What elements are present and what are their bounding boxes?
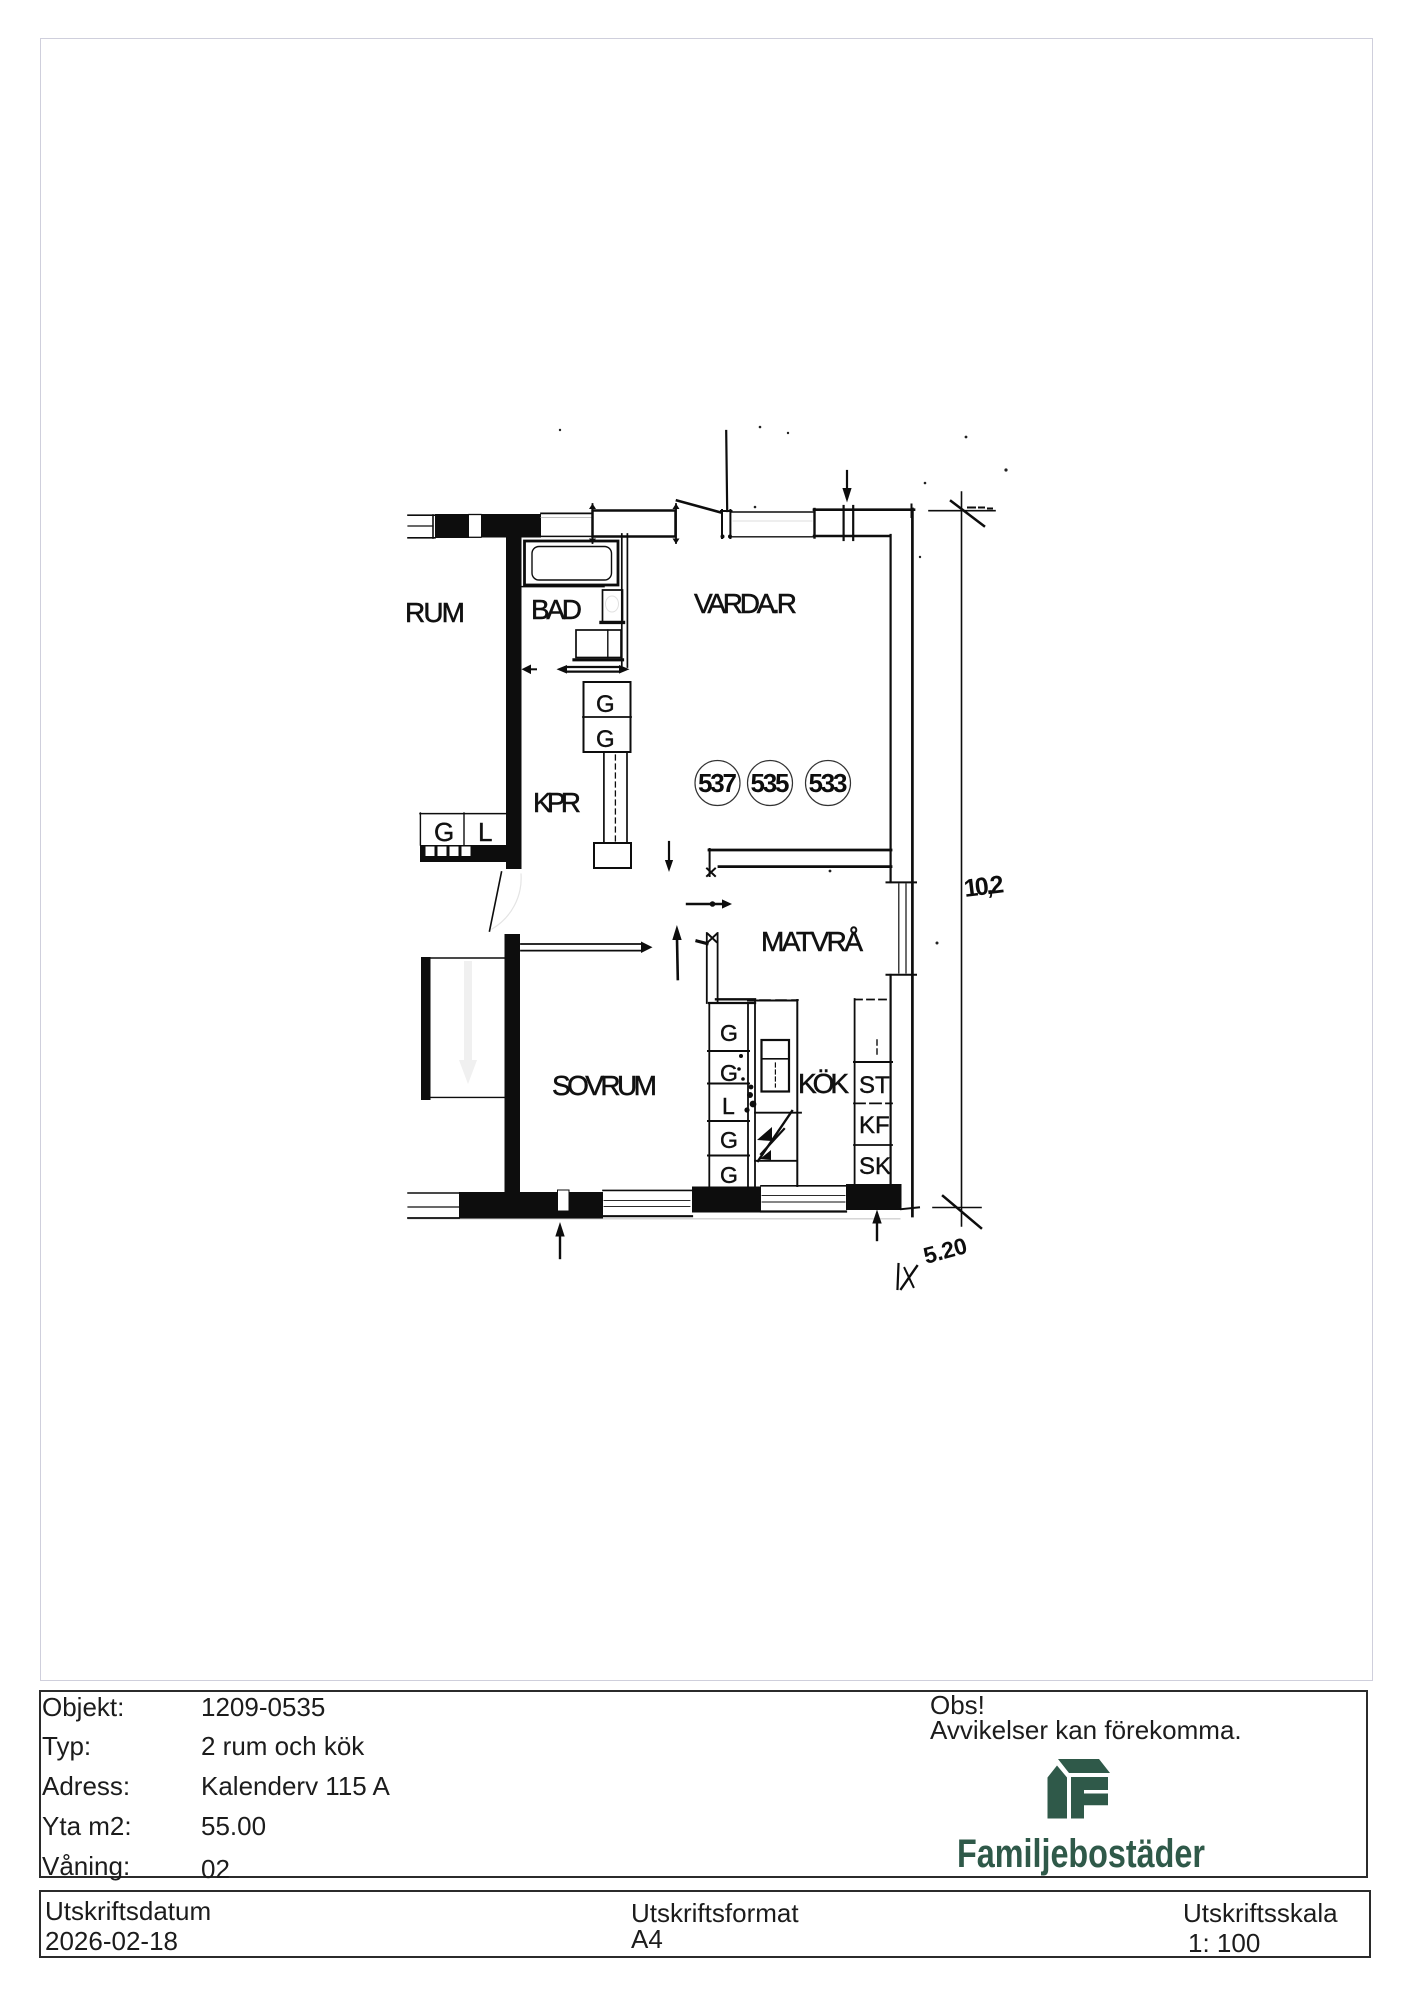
svg-text:MATVRÅ: MATVRÅ — [761, 926, 863, 957]
svg-text:ST: ST — [859, 1072, 890, 1099]
svg-text:G: G — [720, 1162, 738, 1188]
svg-text:10,2: 10,2 — [962, 870, 1005, 903]
svg-text:G: G — [434, 817, 454, 847]
svg-text:KF: KF — [859, 1112, 890, 1139]
svg-text:537: 537 — [698, 768, 737, 798]
svg-text:G: G — [720, 1020, 738, 1046]
svg-text:L: L — [722, 1093, 735, 1119]
svg-text:533: 533 — [809, 768, 848, 798]
svg-text:VARDA.R: VARDA.R — [694, 588, 797, 619]
svg-text:KPR: KPR — [533, 787, 581, 818]
svg-text:L: L — [478, 817, 492, 847]
svg-text:G: G — [596, 726, 615, 753]
svg-text:KÖK: KÖK — [798, 1068, 849, 1099]
svg-text:SK: SK — [859, 1153, 891, 1180]
svg-text:5.20: 5.20 — [921, 1232, 970, 1269]
svg-text:BAD: BAD — [531, 594, 582, 625]
svg-text:535: 535 — [751, 768, 790, 798]
svg-text:SOVRUM: SOVRUM — [552, 1070, 657, 1101]
svg-text:G: G — [720, 1127, 738, 1153]
svg-text:RUM: RUM — [405, 597, 465, 628]
svg-text:G: G — [596, 691, 615, 718]
svg-text:G: G — [720, 1060, 738, 1086]
